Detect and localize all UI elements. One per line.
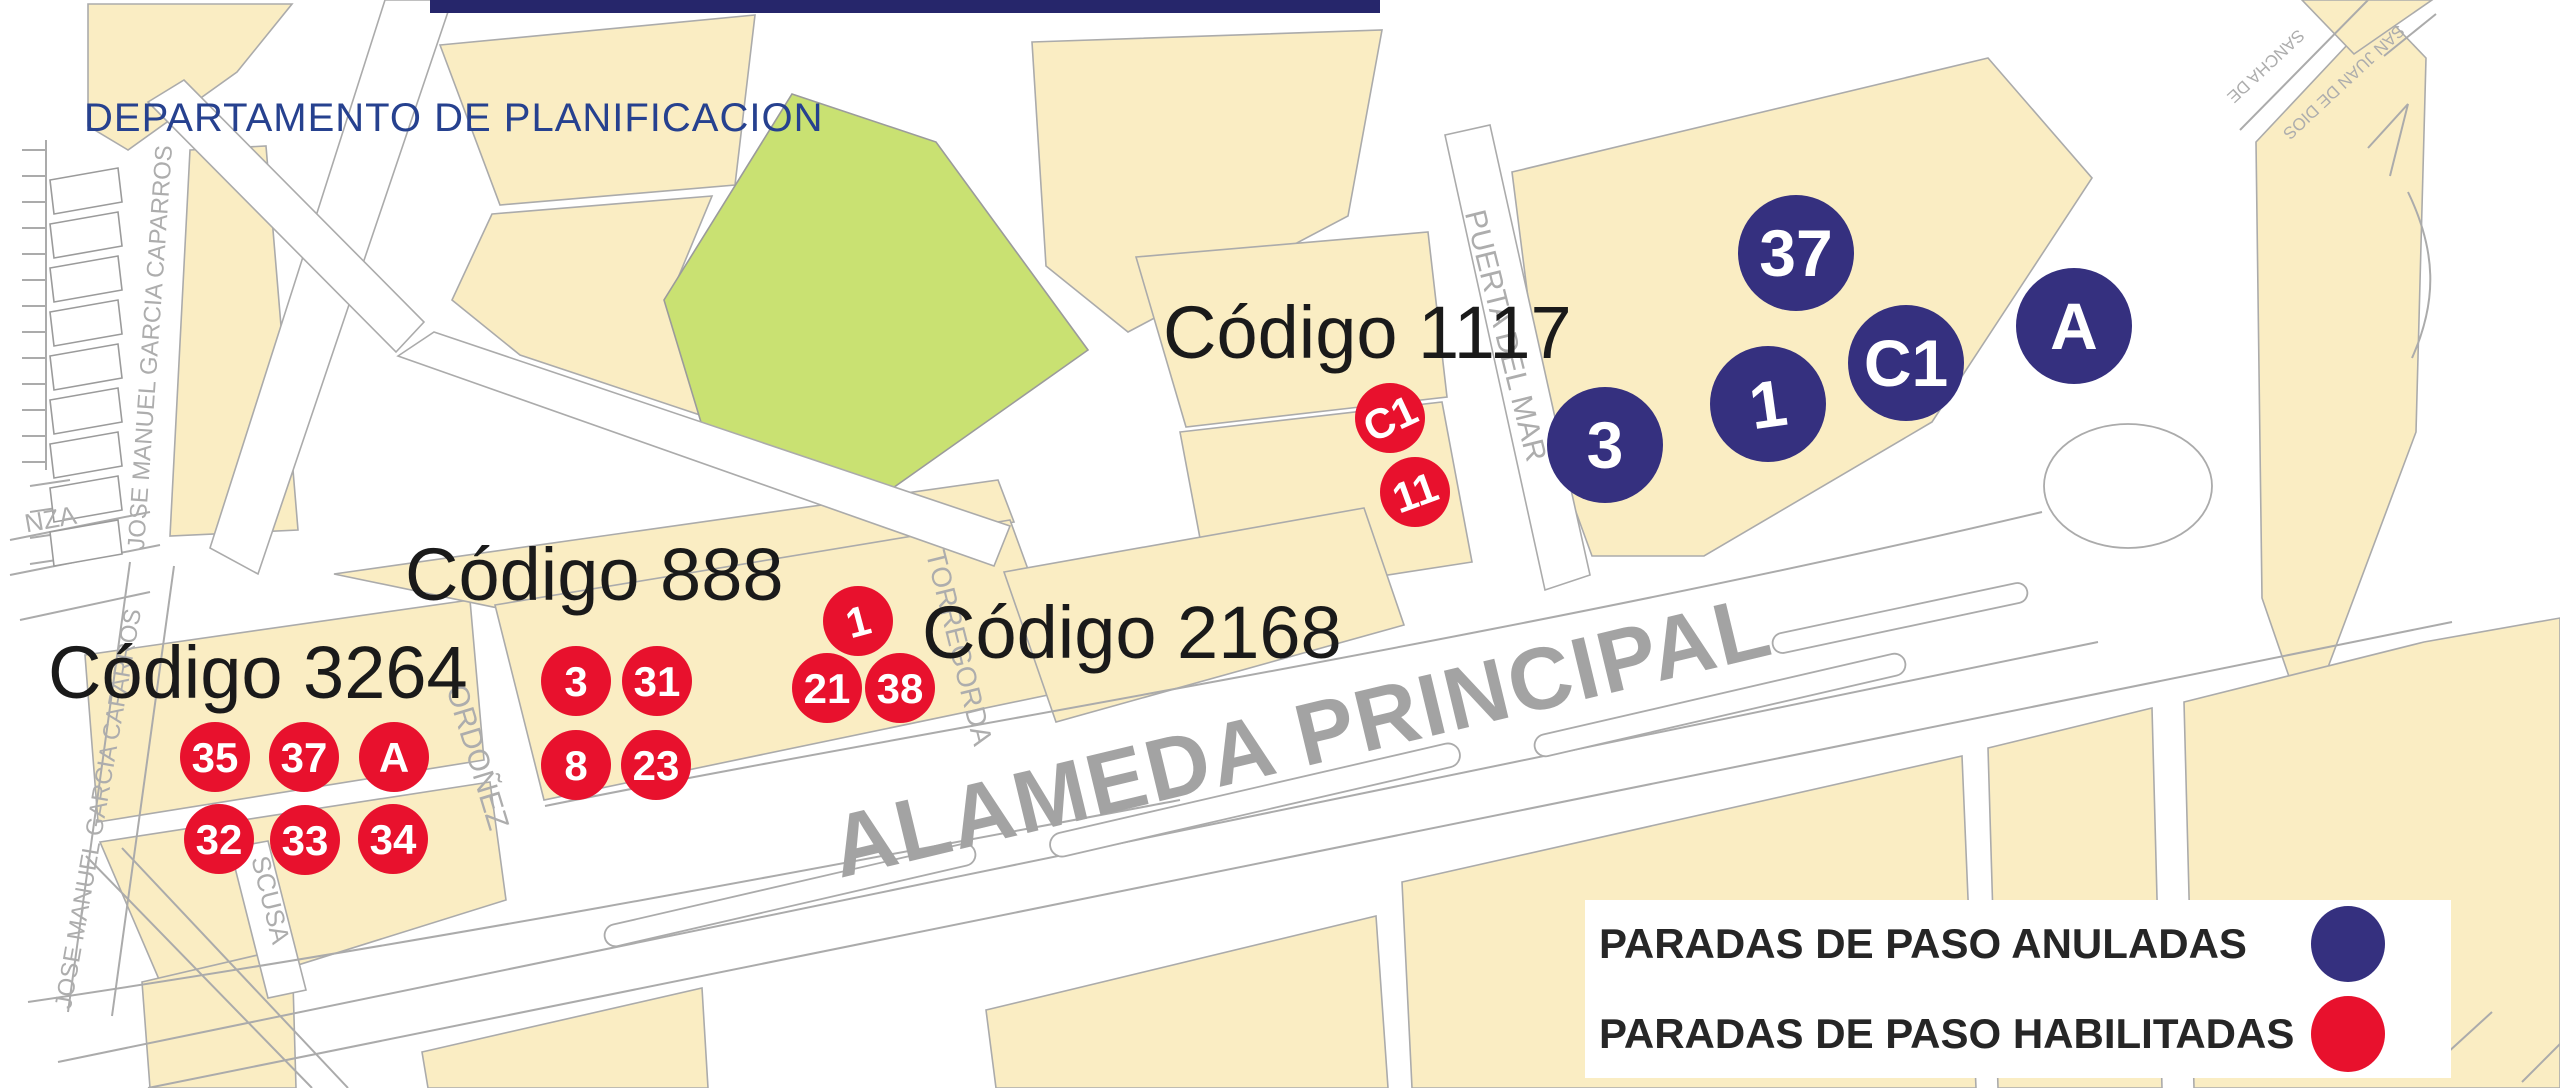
legend-label-anuladas: PARADAS DE PASO ANULADAS: [1599, 920, 2303, 968]
stop-line-number: 37: [281, 734, 328, 781]
stop-line-number: A: [2050, 289, 2098, 363]
stop-badge-enabled-31: 31: [622, 646, 692, 716]
planning-map-page: JOSE MANUEL GARCIA CAPARROSJOSE MANUEL G…: [0, 0, 2560, 1088]
stop-badge-enabled-8: 8: [541, 730, 611, 800]
stop-line-number: 3: [1587, 408, 1624, 482]
stop-line-number: 34: [370, 816, 417, 863]
legend-row-habilitadas: PARADAS DE PASO HABILITADAS: [1599, 994, 2385, 1074]
building-outline: [50, 168, 122, 214]
stop-badge-enabled-33: 33: [270, 805, 340, 875]
roundabout: [2044, 424, 2212, 548]
enabled-stop-swatch-icon: [2311, 996, 2385, 1072]
code-label-1117: Código 1117: [1163, 291, 1572, 374]
code-label-888: Código 888: [405, 533, 784, 616]
stop-line-number: C1: [1864, 326, 1948, 400]
stop-badge-enabled-21: 21: [792, 653, 862, 723]
stop-line-number: 38: [877, 665, 924, 712]
stop-badge-enabled-11: 11: [1380, 457, 1450, 527]
street-label-sancha-de: SANCHA DE: [2223, 26, 2308, 107]
legend-row-anuladas: PARADAS DE PASO ANULADAS: [1599, 904, 2385, 984]
stop-badge-enabled-1: 1: [823, 586, 893, 656]
stop-line-number: 23: [633, 742, 680, 789]
stop-badge-cancelled-1: 1: [1710, 346, 1826, 462]
stop-badge-enabled-23: 23: [621, 730, 691, 800]
legend-label-habilitadas: PARADAS DE PASO HABILITADAS: [1599, 1010, 2303, 1058]
stop-line-number: A: [379, 734, 409, 781]
block: [986, 916, 1388, 1088]
stop-badge-cancelled-a: A: [2016, 268, 2132, 384]
cancelled-stop-swatch-icon: [2311, 906, 2385, 982]
stop-badge-enabled-34: 34: [358, 804, 428, 874]
block: [2256, 10, 2426, 726]
stop-badge-enabled-a: A: [359, 722, 429, 792]
stop-badge-enabled-32: 32: [184, 804, 254, 874]
stop-badge-enabled-35: 35: [180, 722, 250, 792]
top-bar: [430, 0, 1380, 13]
stop-line-number: 33: [282, 817, 329, 864]
stop-badge-enabled-38: 38: [865, 653, 935, 723]
stop-line-number: 3: [564, 658, 587, 705]
stop-badge-cancelled-3: 3: [1547, 387, 1663, 503]
code-label-2168: Código 2168: [922, 591, 1342, 674]
building-outline: [50, 344, 122, 390]
street-label-jose-manuel-garcia-caparros: JOSE MANUEL GARCIA CAPARROS: [123, 144, 178, 550]
stop-badge-enabled-c1: C1: [1355, 383, 1425, 453]
stop-badge-cancelled-c1: C1: [1848, 305, 1964, 421]
stop-badge-enabled-37: 37: [269, 722, 339, 792]
stop-line-number: 8: [564, 742, 587, 789]
building-outline: [50, 388, 122, 434]
page-title: DEPARTAMENTO DE PLANIFICACION: [84, 96, 824, 141]
legend: PARADAS DE PASO ANULADAS PARADAS DE PASO…: [1585, 900, 2451, 1078]
building-outline: [50, 432, 122, 478]
stop-line-number: 31: [634, 658, 681, 705]
stop-line-number: 35: [192, 734, 239, 781]
stop-line-number: 21: [804, 665, 851, 712]
building-outline: [50, 300, 122, 346]
building-outline: [50, 212, 122, 258]
building-outline: [50, 256, 122, 302]
stop-badge-enabled-3: 3: [541, 646, 611, 716]
code-label-3264: Código 3264: [48, 631, 468, 714]
stop-line-number: 32: [196, 816, 243, 863]
stop-badge-cancelled-37: 37: [1738, 195, 1854, 311]
stop-line-number: 37: [1759, 216, 1832, 290]
